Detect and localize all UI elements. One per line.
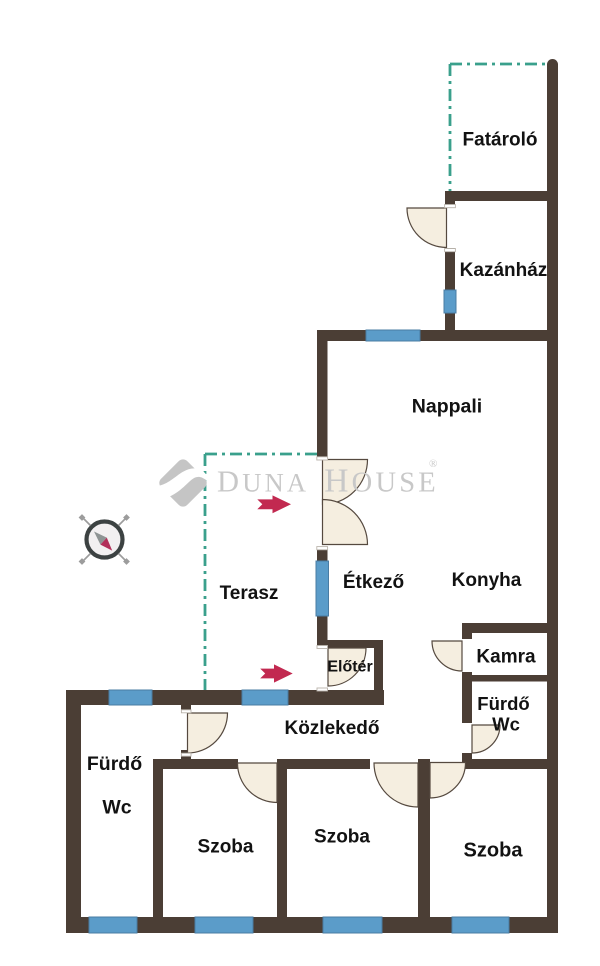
svg-text:Fatároló: Fatároló	[463, 130, 538, 151]
svg-text:Kamra: Kamra	[476, 647, 536, 668]
svg-text:Wc: Wc	[102, 797, 131, 819]
svg-text:Szoba: Szoba	[464, 840, 524, 862]
svg-text:Szoba: Szoba	[198, 837, 254, 858]
svg-text:Fürdő: Fürdő	[87, 753, 142, 775]
svg-text:Kazánház: Kazánház	[460, 260, 548, 281]
svg-text:Közlekedő: Közlekedő	[284, 718, 379, 739]
svg-text:DUNAHOUSE: DUNAHOUSE	[217, 463, 439, 500]
svg-text:Konyha: Konyha	[452, 570, 522, 591]
svg-text:Fürdő: Fürdő	[477, 693, 529, 714]
svg-text:Wc: Wc	[492, 714, 520, 735]
svg-text:®: ®	[429, 458, 437, 470]
svg-text:Terasz: Terasz	[220, 583, 279, 604]
svg-text:Nappali: Nappali	[412, 396, 482, 418]
svg-text:Előtér: Előtér	[327, 659, 372, 676]
svg-text:Étkező: Étkező	[343, 571, 404, 593]
svg-text:Szoba: Szoba	[314, 827, 370, 848]
